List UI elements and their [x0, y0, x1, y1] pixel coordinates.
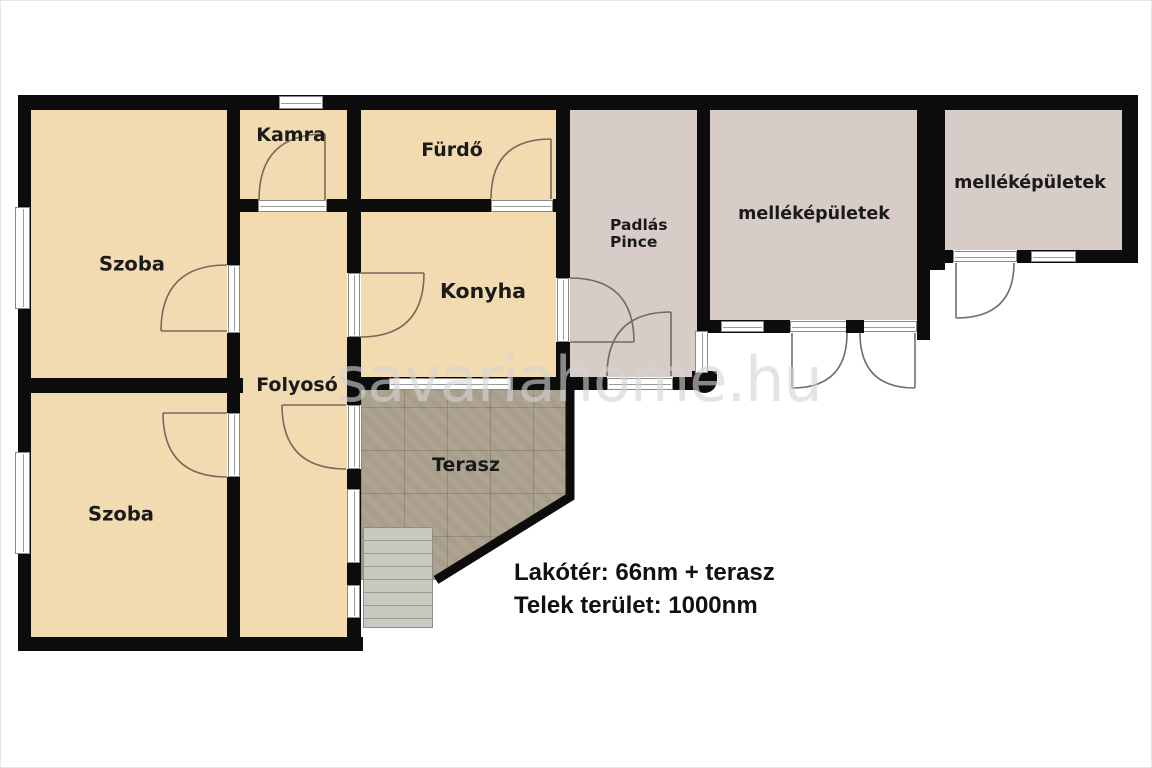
door-threshold-konyha: [348, 273, 360, 337]
wall-house-bottom: [18, 637, 363, 651]
wall: [227, 95, 240, 265]
wall-top: [18, 95, 1138, 110]
label-kamra: Kamra: [256, 124, 326, 146]
door-threshold-szoba-bottom: [228, 413, 240, 477]
wall: [227, 333, 240, 413]
floorplan-canvas: Szoba Szoba Kamra Fürdő Konyha Folyosó T…: [0, 0, 1152, 768]
window-east-2: [347, 585, 360, 618]
terrace-stairs: [363, 527, 433, 628]
door-threshold-outbuilding2: [953, 251, 1017, 262]
living-area-text: Lakótér: 66nm + terasz: [514, 557, 775, 590]
door-threshold-kamra: [258, 200, 327, 212]
door-arc-double: [792, 333, 915, 388]
window-konyha-south: [389, 378, 511, 390]
wall: [227, 477, 240, 637]
label-szoba-top: Szoba: [99, 253, 165, 276]
wall: [347, 337, 361, 405]
double-door-center-stile: [846, 320, 864, 333]
wall-szoba-divider: [18, 378, 243, 393]
label-konyha: Konyha: [440, 279, 526, 303]
window-kamra-top: [279, 96, 323, 109]
wall: [347, 95, 361, 273]
window-padlas-east: [695, 331, 708, 373]
window-left-2: [15, 452, 30, 554]
label-terasz: Terasz: [432, 454, 500, 476]
label-folyoso: Folyosó: [256, 374, 338, 396]
wall-outbuilding1-right: [917, 95, 930, 340]
area-annotations: Lakótér: 66nm + terasz Telek terület: 10…: [514, 557, 775, 623]
door-threshold-padlas-south: [607, 378, 673, 390]
door-threshold-terasz: [348, 405, 360, 469]
window-east-1: [347, 489, 360, 563]
room-szoba-top: [31, 110, 227, 378]
plot-area-text: Telek terület: 1000nm: [514, 590, 775, 623]
wall-house-east: [556, 342, 570, 390]
room-folyoso: [240, 212, 347, 637]
door-threshold-furdo: [491, 200, 553, 212]
wall-outbuilding2-right: [1122, 95, 1138, 263]
window-left-1: [15, 207, 30, 309]
wall-south: [673, 377, 710, 390]
label-padlas-line2: Pince: [610, 234, 668, 251]
wall: [945, 250, 953, 263]
wall-outbuilding2-left: [930, 95, 945, 270]
wall-padlas-east: [697, 95, 710, 333]
wall-left: [18, 95, 31, 650]
label-padlas-line1: Padlás: [610, 217, 668, 234]
window-outbuilding1-south: [721, 321, 764, 332]
door-arc-outbuilding2: [956, 263, 1014, 318]
label-szoba-bottom: Szoba: [88, 503, 154, 526]
label-outbuilding-1: melléképületek: [738, 204, 890, 224]
label-padlas-pince: Padlás Pince: [610, 217, 668, 252]
door-threshold-padlas: [557, 278, 569, 342]
wall-house-east: [556, 95, 570, 278]
door-threshold-szoba-top: [228, 265, 240, 333]
window-outbuilding2-south: [1031, 251, 1076, 262]
label-furdo: Fürdő: [421, 139, 483, 161]
label-outbuilding-2: melléképületek: [954, 173, 1106, 193]
